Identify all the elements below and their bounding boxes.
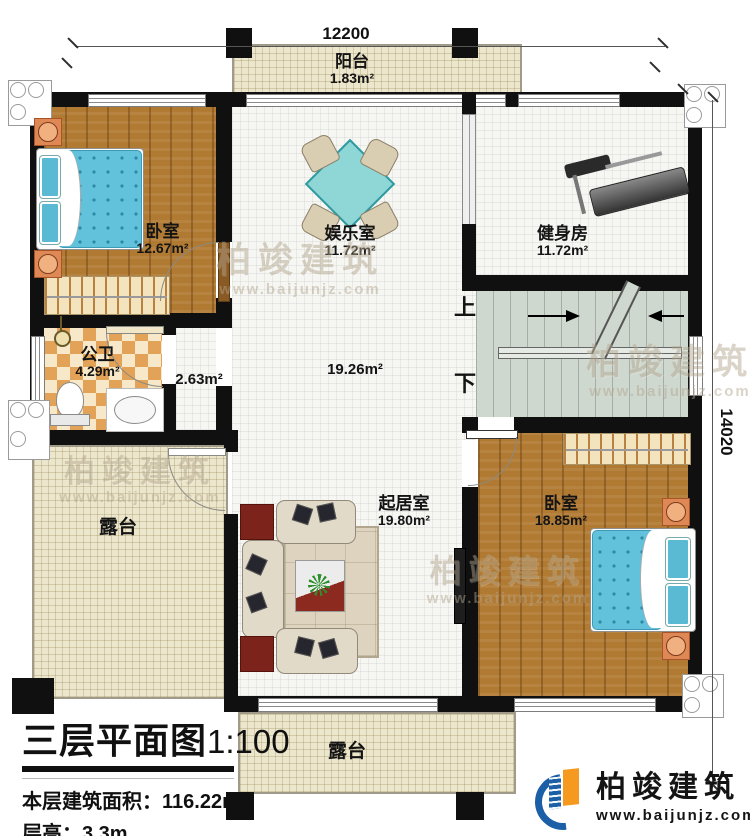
dimension-line-right [712, 100, 713, 788]
ac-fan [28, 82, 44, 98]
wall-gym-bottom [462, 275, 702, 291]
glass-partition [462, 114, 476, 226]
logo-building-orange [563, 768, 579, 806]
wall-bathroom-right [162, 313, 176, 335]
treadmill-rail [605, 151, 662, 169]
sofa-cushion [316, 502, 336, 522]
title-underline-thin [22, 778, 234, 779]
ac-unit [682, 674, 724, 718]
ac-fan [684, 676, 700, 692]
title-underline [22, 766, 234, 772]
bed1-pillow [40, 202, 60, 244]
brand-url: www.baijunjz.com [596, 807, 750, 824]
bed2-nightstand [662, 498, 690, 526]
column [452, 28, 478, 58]
wall-bathroom-right [162, 384, 176, 430]
bed1-nightstand [34, 118, 62, 146]
corner-tick [649, 61, 660, 72]
room-area: 19.26m² [300, 362, 410, 379]
room-area: 4.29m² [55, 364, 140, 380]
title-block: 三层平面图1:100 本层建筑面积：116.22m² 层高：3.3m [22, 712, 322, 836]
bed2-pillow [666, 584, 690, 626]
side-table-red [240, 504, 274, 540]
dimension-tick [67, 37, 78, 48]
bathroom-label: 公卫 4.29m² [55, 345, 140, 380]
room-area: 12.67m² [110, 241, 215, 257]
room-name: 卧室 [505, 494, 617, 513]
bedroom2-window [514, 698, 656, 712]
gym-label: 健身房 11.72m² [505, 224, 620, 259]
wall-hall-terrace [224, 514, 238, 696]
room-name: 起居室 [348, 494, 460, 513]
dimension-right-value: 14020 [716, 392, 736, 472]
ac-fan [686, 86, 702, 102]
floor-height-value: 3.3m [82, 823, 128, 836]
dimension-line-top [75, 46, 665, 47]
room-name: 卧室 [110, 222, 215, 241]
bedroom2-label: 卧室 18.85m² [505, 494, 617, 529]
entertainment-label: 娱乐室 11.72m² [295, 224, 405, 259]
wall-corridor-right-pier [216, 386, 232, 430]
room-name: 公卫 [55, 345, 140, 364]
stair-down-label: 下 [448, 372, 482, 397]
stair-direction-arrow [566, 310, 580, 322]
bedroom1-window [88, 94, 206, 107]
brand-logo: 柏竣建筑 www.baijunjz.com [534, 762, 750, 824]
gym-window [518, 94, 620, 107]
plant-symbol [308, 574, 330, 596]
room-name: 露台 [78, 517, 158, 538]
wall-bathroom-bottom [30, 430, 226, 445]
brand-logo-text: 柏竣建筑 www.baijunjz.com [596, 762, 750, 824]
ac-fan [684, 697, 700, 713]
room-area: 11.72m² [295, 243, 405, 259]
wall-ent-gym [462, 224, 476, 275]
stair-direction-arrow [648, 310, 662, 322]
toilet-symbol [56, 382, 84, 418]
logo-building-blue [549, 776, 561, 809]
tv-panel [454, 548, 466, 624]
column [456, 792, 484, 820]
room-name: 阳台 [312, 52, 392, 71]
room-area: 19.80m² [348, 513, 460, 529]
bedroom1-wardrobe [44, 276, 170, 315]
side-table-red [240, 636, 274, 672]
stair-window [689, 336, 703, 396]
corridor-label: 2.63m² [160, 372, 238, 389]
ac-unit [8, 400, 50, 460]
ac-fan [10, 431, 26, 447]
bedroom2-wardrobe [563, 433, 691, 465]
ac-fan [28, 402, 44, 418]
shower-hose [60, 316, 62, 331]
bedroom1-door-leaf [218, 242, 230, 302]
floor-height-label: 层高： [22, 823, 82, 836]
sink-symbol [114, 396, 156, 424]
plan-title-row: 三层平面图1:100 [22, 712, 322, 764]
floor-height-line: 层高：3.3m [22, 817, 322, 836]
ac-fan [702, 676, 718, 692]
ac-fan [686, 107, 702, 123]
floor-area-value: 116.22m² [162, 791, 247, 813]
toilet-tank [50, 414, 90, 426]
column [12, 678, 54, 714]
floor-plan-canvas: 阳台 1.83m² 卧室 12.67m² 娱乐室 11.72m² 健身房 11.… [0, 0, 750, 836]
ac-unit [684, 84, 726, 128]
wall-ent-gym [462, 92, 476, 114]
wall-hall-terrace [224, 430, 238, 452]
floor-area-line: 本层建筑面积：116.22m² [22, 785, 322, 814]
room-name: 娱乐室 [295, 224, 405, 243]
ac-fan [10, 402, 26, 418]
bed1-nightstand [34, 250, 62, 278]
bed2-nightstand [662, 632, 690, 660]
living-label: 起居室 19.80m² [348, 494, 460, 529]
corner-tick [61, 57, 72, 68]
room-name: 健身房 [505, 224, 620, 243]
room-area: 11.72m² [505, 243, 620, 259]
bed1-pillow [40, 156, 60, 198]
ac-fan [10, 82, 26, 98]
dimension-top-value: 12200 [300, 24, 392, 44]
sofa-south [276, 628, 358, 674]
plan-title: 三层平面图 [22, 720, 207, 761]
balcony-label: 阳台 1.83m² [312, 52, 392, 87]
column [226, 28, 252, 58]
wall-bedroom1-right [216, 92, 232, 242]
room-area: 2.63m² [160, 372, 238, 389]
brand-name: 柏竣建筑 [596, 762, 750, 806]
room-area: 18.85m² [505, 513, 617, 529]
bedroom1-label: 卧室 12.67m² [110, 222, 215, 257]
sofa-west [242, 540, 284, 638]
bed2-pillow [666, 538, 690, 580]
stair-up-label: 上 [448, 296, 482, 321]
treadmill-rail [572, 174, 586, 214]
brand-logo-icon [534, 765, 588, 821]
room-area: 1.83m² [312, 71, 392, 87]
stair-handrail [498, 347, 682, 359]
living-window [258, 698, 438, 712]
wall-bedroom2-top [514, 417, 702, 433]
plan-scale: 1:100 [207, 723, 290, 760]
floor-area-label: 本层建筑面积： [22, 791, 162, 813]
bed2-sheet [640, 530, 663, 628]
ac-fan [10, 104, 26, 120]
terrace-left-label: 露台 [78, 517, 158, 538]
hall-label: 19.26m² [300, 362, 410, 379]
